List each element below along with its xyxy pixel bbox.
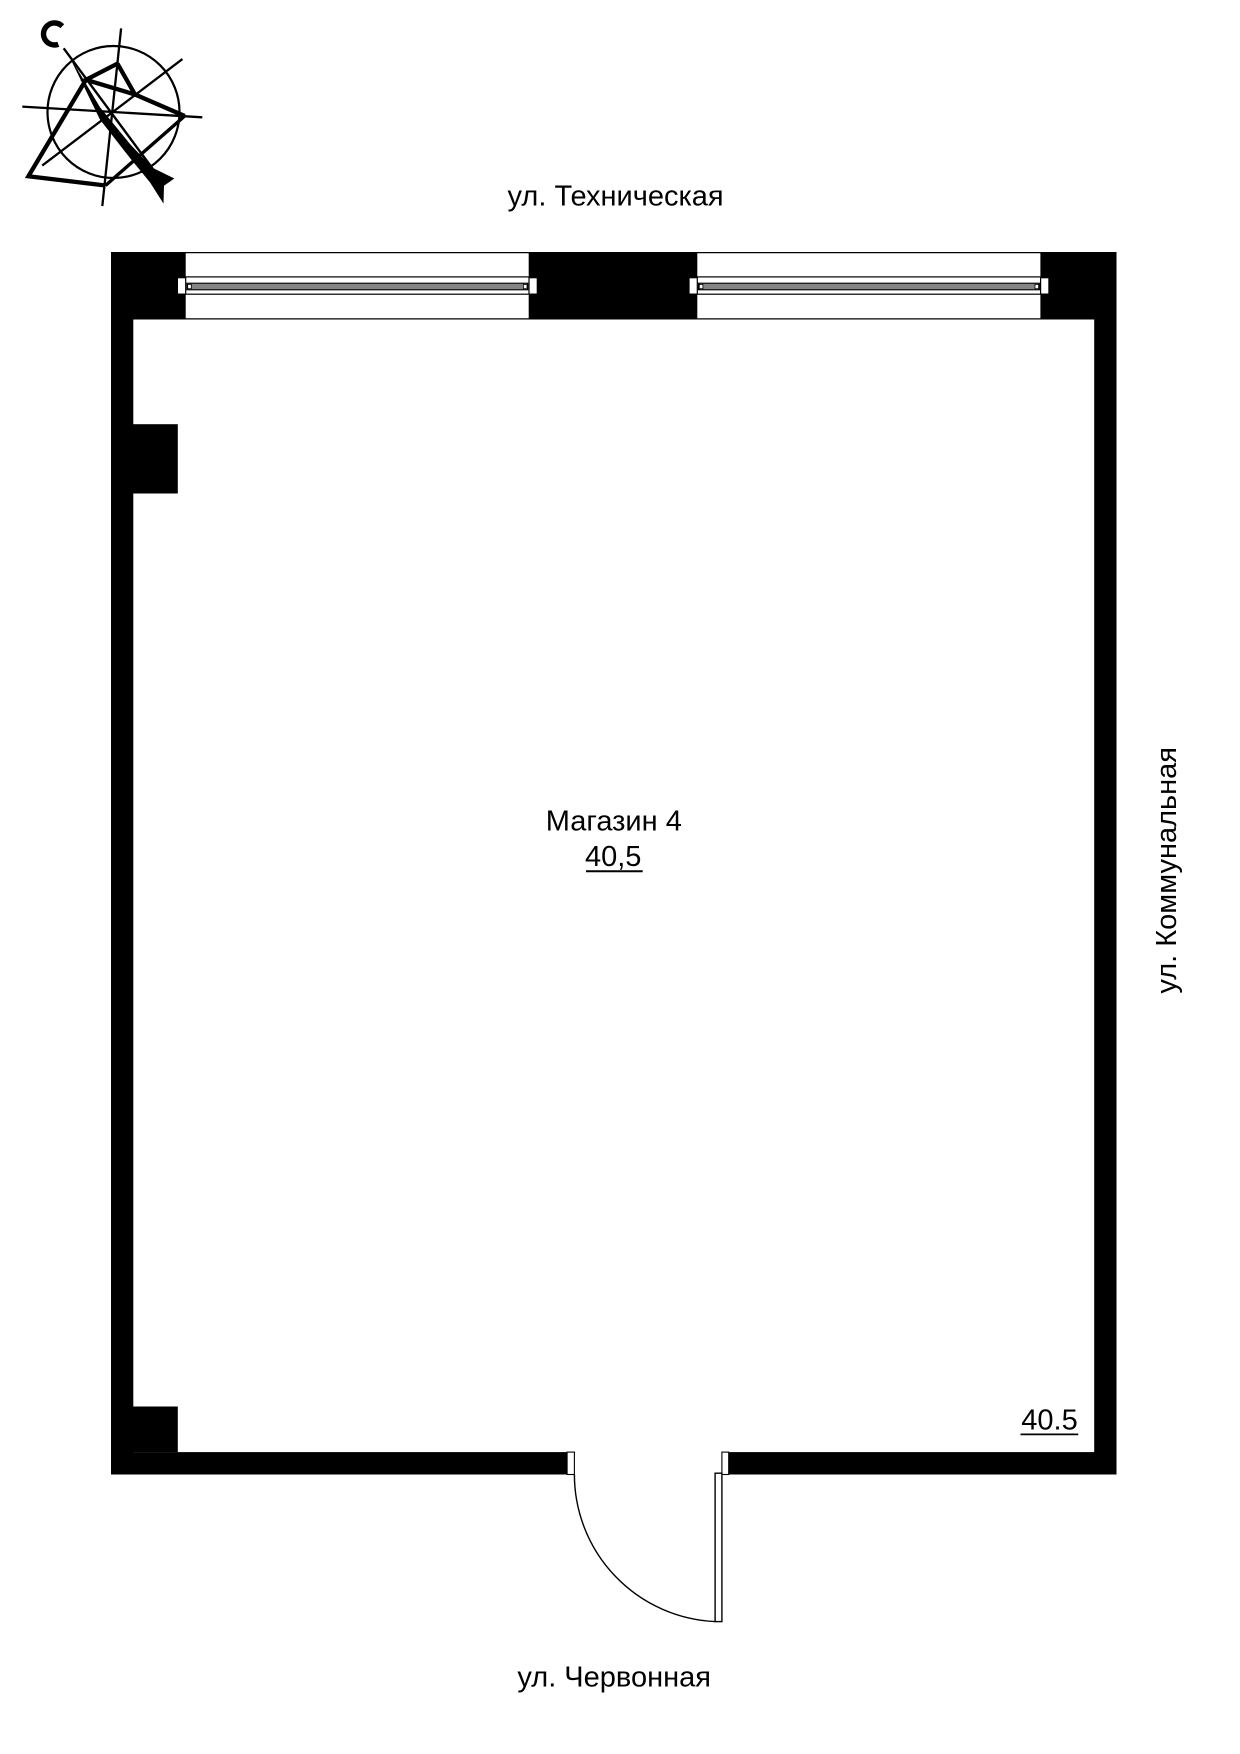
svg-text:40,5: 40,5 (585, 841, 641, 873)
svg-text:Магазин 4: Магазин 4 (546, 806, 682, 838)
svg-text:ул. Коммунальная: ул. Коммунальная (1151, 747, 1183, 994)
svg-text:ул. Червонная: ул. Червонная (517, 1662, 711, 1694)
svg-text:40.5: 40.5 (1021, 1405, 1077, 1437)
svg-text:ул. Техническая: ул. Техническая (508, 181, 724, 213)
